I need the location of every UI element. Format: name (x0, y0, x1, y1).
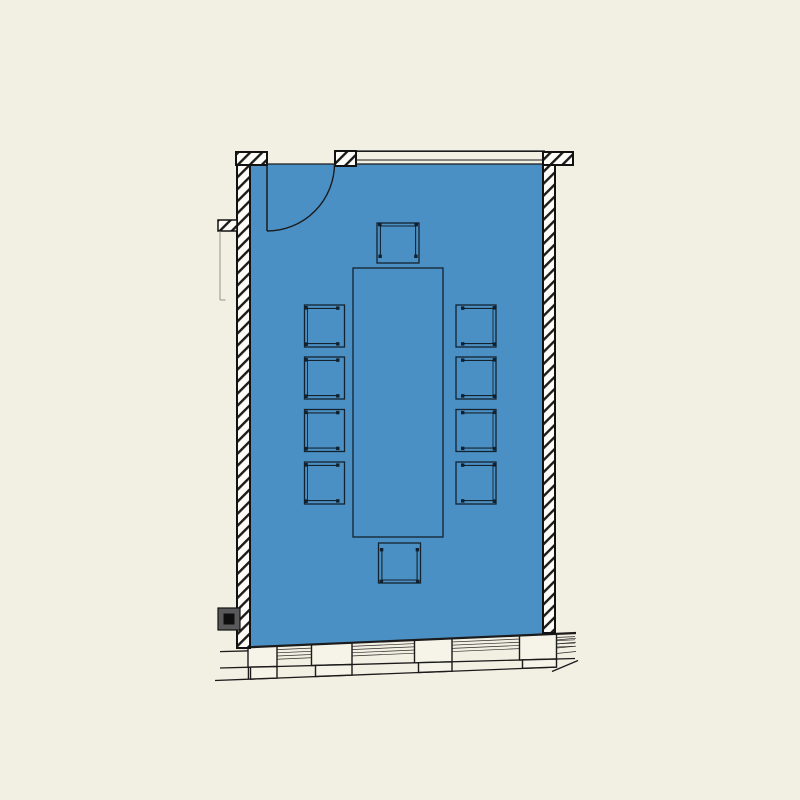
floor-plan-drawing (0, 0, 800, 800)
window-mullion-4 (520, 634, 557, 669)
wall-pier-top (335, 151, 356, 166)
window-mullion-2 (312, 643, 353, 677)
column (218, 608, 240, 630)
window-mullion-3 (415, 638, 453, 672)
floor-plan-canvas (0, 0, 800, 800)
wall-right (543, 152, 555, 633)
wall-top-left (236, 152, 267, 165)
wall-flange-left (218, 220, 237, 231)
column-core (224, 614, 235, 625)
sill-stub-left (220, 651, 250, 652)
window-mullion-1 (248, 646, 277, 679)
wall-flange-top-right (543, 152, 573, 165)
room-highlight-conference[interactable] (250, 164, 543, 648)
wall-left (237, 152, 250, 648)
